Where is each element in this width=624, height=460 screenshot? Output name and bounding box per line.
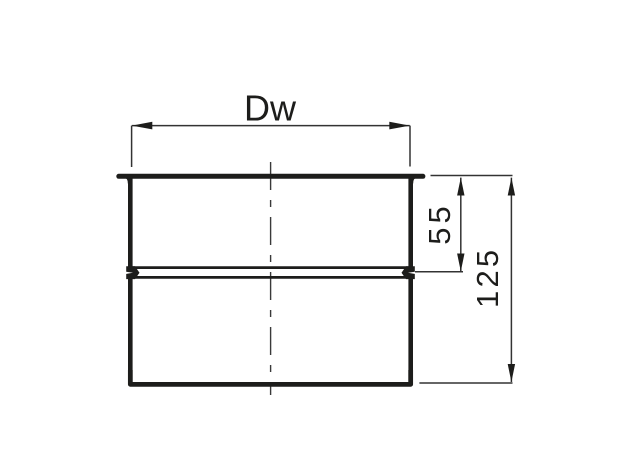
svg-text:Dw: Dw — [244, 87, 297, 128]
svg-text:55: 55 — [422, 202, 457, 244]
svg-text:125: 125 — [470, 247, 505, 308]
